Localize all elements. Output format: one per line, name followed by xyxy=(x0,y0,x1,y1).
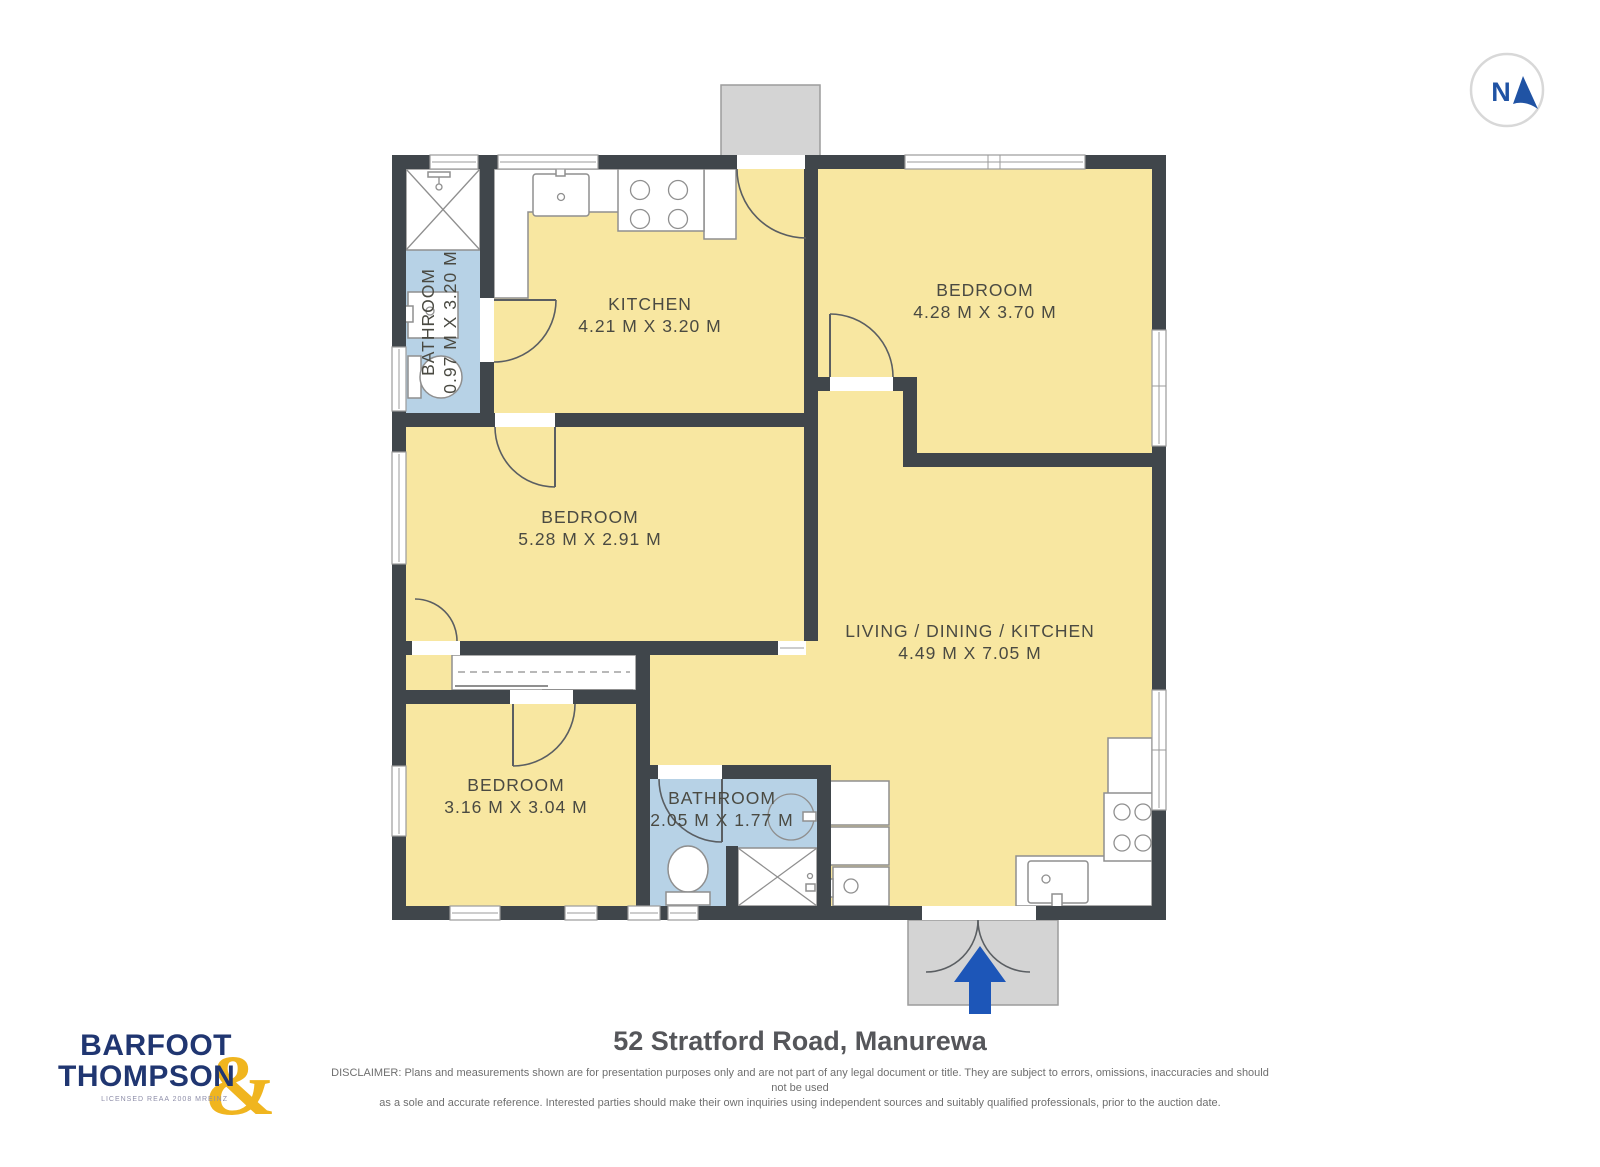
shower-top-left xyxy=(406,169,480,250)
shower-head-icon xyxy=(428,172,450,177)
disclaimer-line-1: DISCLAIMER: Plans and measurements shown… xyxy=(330,1066,1270,1096)
bedroom-bottom-label: BEDROOM xyxy=(467,775,564,795)
disclaimer-text: DISCLAIMER: Plans and measurements shown… xyxy=(330,1066,1270,1111)
laundry-tub-icon xyxy=(833,867,889,906)
logo-barfoot: BARFOOT xyxy=(58,1030,276,1061)
floorplan-page: N xyxy=(0,0,1600,1167)
bedroom-bottom-dims: 3.16 M X 3.04 M xyxy=(444,797,587,817)
bedroom-top-right-dims: 4.28 M X 3.70 M xyxy=(913,302,1056,322)
north-indicator: N xyxy=(1471,54,1543,126)
living-label: LIVING / DINING / KITCHEN xyxy=(845,621,1095,641)
logo-tagline: LICENSED REAA 2008 MREINZ xyxy=(58,1096,276,1103)
kitchen-sink-icon xyxy=(533,174,589,216)
floorplan-svg: N xyxy=(0,0,1600,1167)
bedroom-top-right-label: BEDROOM xyxy=(936,280,1033,300)
rear-porch xyxy=(721,85,820,157)
kitchen-label: KITCHEN xyxy=(608,294,692,314)
logo-thompson: THOMPSON xyxy=(58,1061,276,1092)
disclaimer-line-2: as a sole and accurate reference. Intere… xyxy=(330,1096,1270,1111)
bathroom-left-dims: 0.97 M X 3.20 M xyxy=(440,250,460,393)
bathroom-left-label: BATHROOM xyxy=(418,268,438,376)
north-label: N xyxy=(1491,77,1511,107)
kitchen-dims: 4.21 M X 3.20 M xyxy=(578,316,721,336)
agency-logo: & BARFOOT THOMPSON LICENSED REAA 2008 MR… xyxy=(58,1030,276,1103)
bedroom-middle-dims: 5.28 M X 2.91 M xyxy=(518,529,661,549)
bedroom-middle-label: BEDROOM xyxy=(541,507,638,527)
laundry-units xyxy=(825,781,889,906)
toilet-icon xyxy=(668,846,708,892)
living-dims: 4.49 M X 7.05 M xyxy=(898,643,1041,663)
bathroom-bottom-dims: 2.05 M X 1.77 M xyxy=(650,810,793,830)
bathroom-bottom-label: BATHROOM xyxy=(668,788,776,808)
